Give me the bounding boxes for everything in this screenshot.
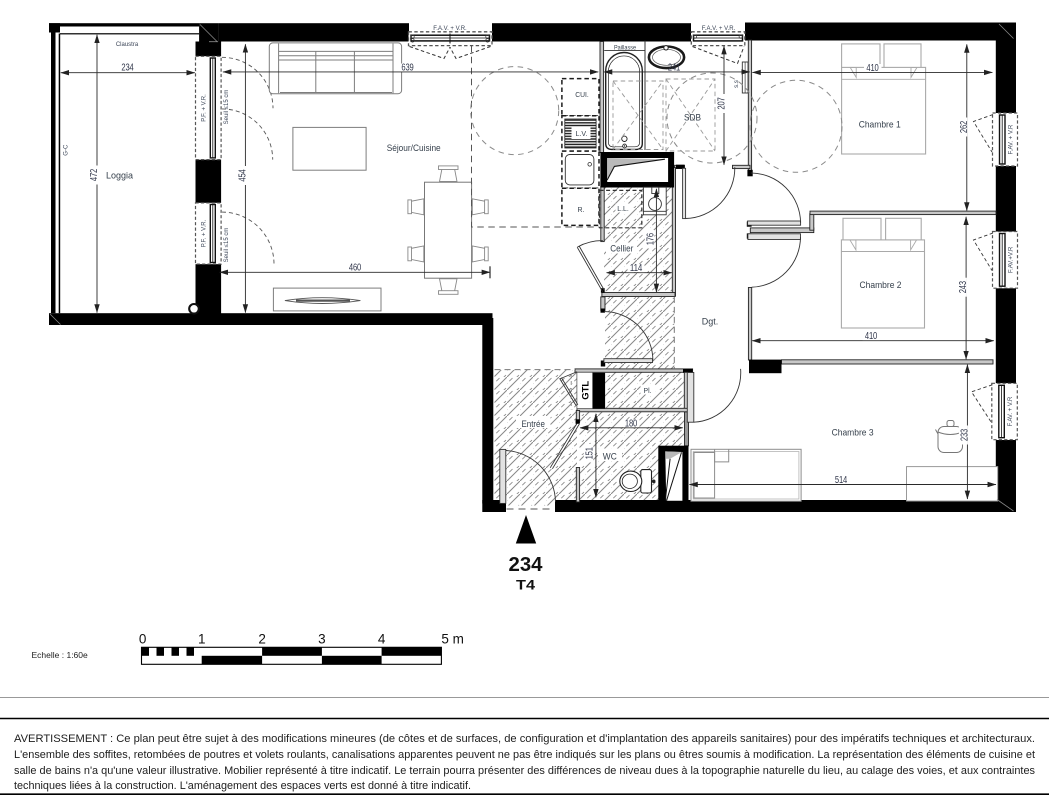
svg-text:472: 472 [89,168,100,181]
svg-text:5 m: 5 m [441,632,464,647]
svg-text:techniques liées à la construc: techniques liées à la construction. L'am… [14,780,471,792]
svg-text:114: 114 [630,263,643,274]
svg-text:Paillasse: Paillasse [614,45,637,51]
svg-text:460: 460 [349,263,362,274]
svg-text:4: 4 [378,632,386,647]
svg-text:3: 3 [318,632,326,647]
svg-text:176: 176 [646,233,657,246]
svg-text:410: 410 [865,331,878,342]
svg-text:454: 454 [237,169,248,182]
svg-text:Séjour/Cuisine: Séjour/Cuisine [387,143,441,154]
svg-text:AVERTISSEMENT : Ce plan peut ê: AVERTISSEMENT : Ce plan peut être sujet … [14,733,1035,745]
svg-text:SDB: SDB [684,112,701,123]
svg-text:180: 180 [625,418,638,429]
svg-text:R.: R. [578,205,585,214]
svg-text:514: 514 [835,475,848,486]
svg-text:241: 241 [668,62,681,73]
svg-text:s.s: s.s [734,80,740,88]
svg-text:P.F. + V.R.: P.F. + V.R. [201,219,207,247]
svg-text:L.L.: L.L. [617,204,629,213]
svg-text:Loggia: Loggia [106,171,134,182]
svg-text:Claustra: Claustra [116,42,139,48]
svg-text:233: 233 [960,428,971,441]
svg-text:151: 151 [585,447,596,460]
svg-text:Seuil ≤15 cm: Seuil ≤15 cm [224,90,230,125]
svg-text:salle de bains n'a qu'une vale: salle de bains n'a qu'une valeur illustr… [14,765,1035,777]
svg-text:1: 1 [198,632,206,647]
svg-text:Entrée: Entrée [521,419,545,429]
svg-text:F.A.V. + V.R.: F.A.V. + V.R. [702,26,736,32]
svg-text:639: 639 [401,62,414,73]
svg-text:T4: T4 [516,577,535,593]
svg-text:Chambre 2: Chambre 2 [860,280,902,291]
svg-text:Chambre 1: Chambre 1 [859,119,901,130]
svg-text:CUI.: CUI. [575,90,589,99]
svg-text:234: 234 [121,63,134,74]
svg-text:WC: WC [603,451,617,461]
svg-text:F.AV. + V.R: F.AV. + V.R [1008,124,1014,154]
svg-text:207: 207 [717,97,728,110]
svg-text:243: 243 [958,281,969,294]
svg-text:P.F. + V.R.: P.F. + V.R. [201,94,207,122]
svg-text:Dgt.: Dgt. [702,316,719,327]
svg-text:262: 262 [959,120,970,133]
svg-text:0: 0 [139,632,147,647]
svg-text:L'ensemble des soffites, retom: L'ensemble des soffites, retombées de po… [14,749,1035,761]
svg-text:F.AV. + V.R: F.AV. + V.R [1008,396,1014,426]
svg-text:Pl.: Pl. [644,386,652,395]
svg-text:410: 410 [866,63,879,74]
svg-text:L.V.: L.V. [576,129,588,138]
svg-text:Seuil ≤15 cm: Seuil ≤15 cm [224,228,230,263]
svg-text:G-C: G-C [64,144,70,156]
svg-text:2: 2 [258,632,266,647]
svg-text:F.AV.+V.R: F.AV.+V.R [1008,246,1014,273]
svg-text:234: 234 [509,554,544,576]
svg-text:Cellier: Cellier [610,244,633,255]
svg-text:F.A.V. + V.R.: F.A.V. + V.R. [433,26,467,32]
svg-text:Echelle : 1:60e: Echelle : 1:60e [32,650,89,660]
svg-text:Chambre 3: Chambre 3 [832,427,874,438]
svg-text:GTL: GTL [580,381,591,400]
